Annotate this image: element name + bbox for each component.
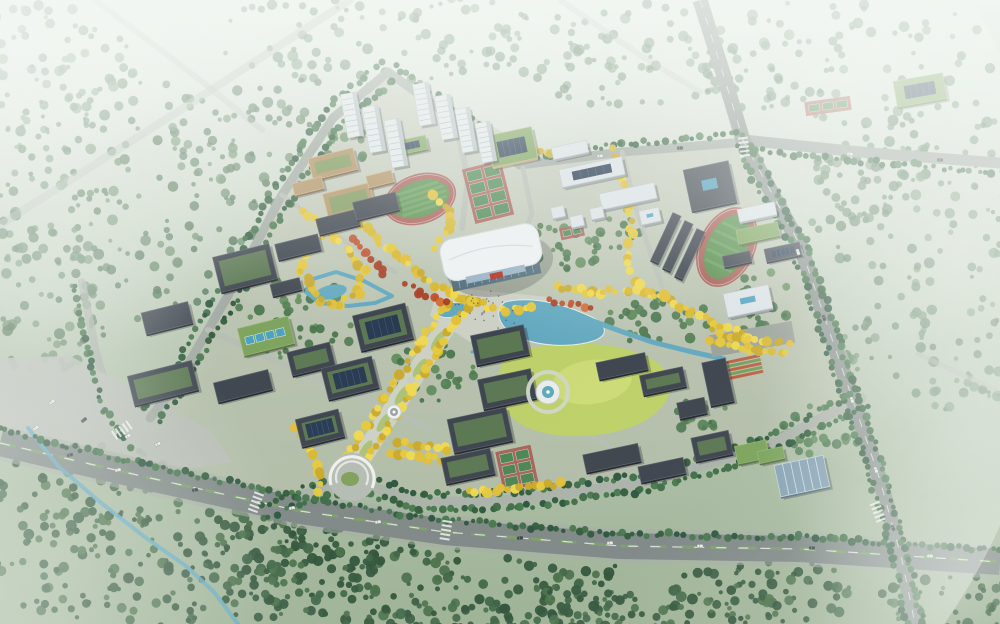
campus-aerial-rendering [0, 0, 1000, 624]
rendering-canvas [0, 0, 1000, 624]
atmospheric-haze [0, 0, 1000, 624]
